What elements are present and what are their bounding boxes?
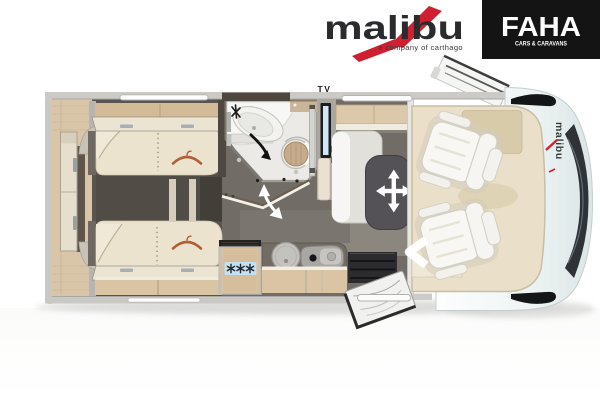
- svg-text:FAHA: FAHA: [501, 11, 581, 42]
- svg-text:malibu: malibu: [324, 9, 464, 46]
- svg-text:a company of carthago: a company of carthago: [378, 43, 463, 52]
- svg-text:CARS & CARAVANS: CARS & CARAVANS: [515, 41, 567, 48]
